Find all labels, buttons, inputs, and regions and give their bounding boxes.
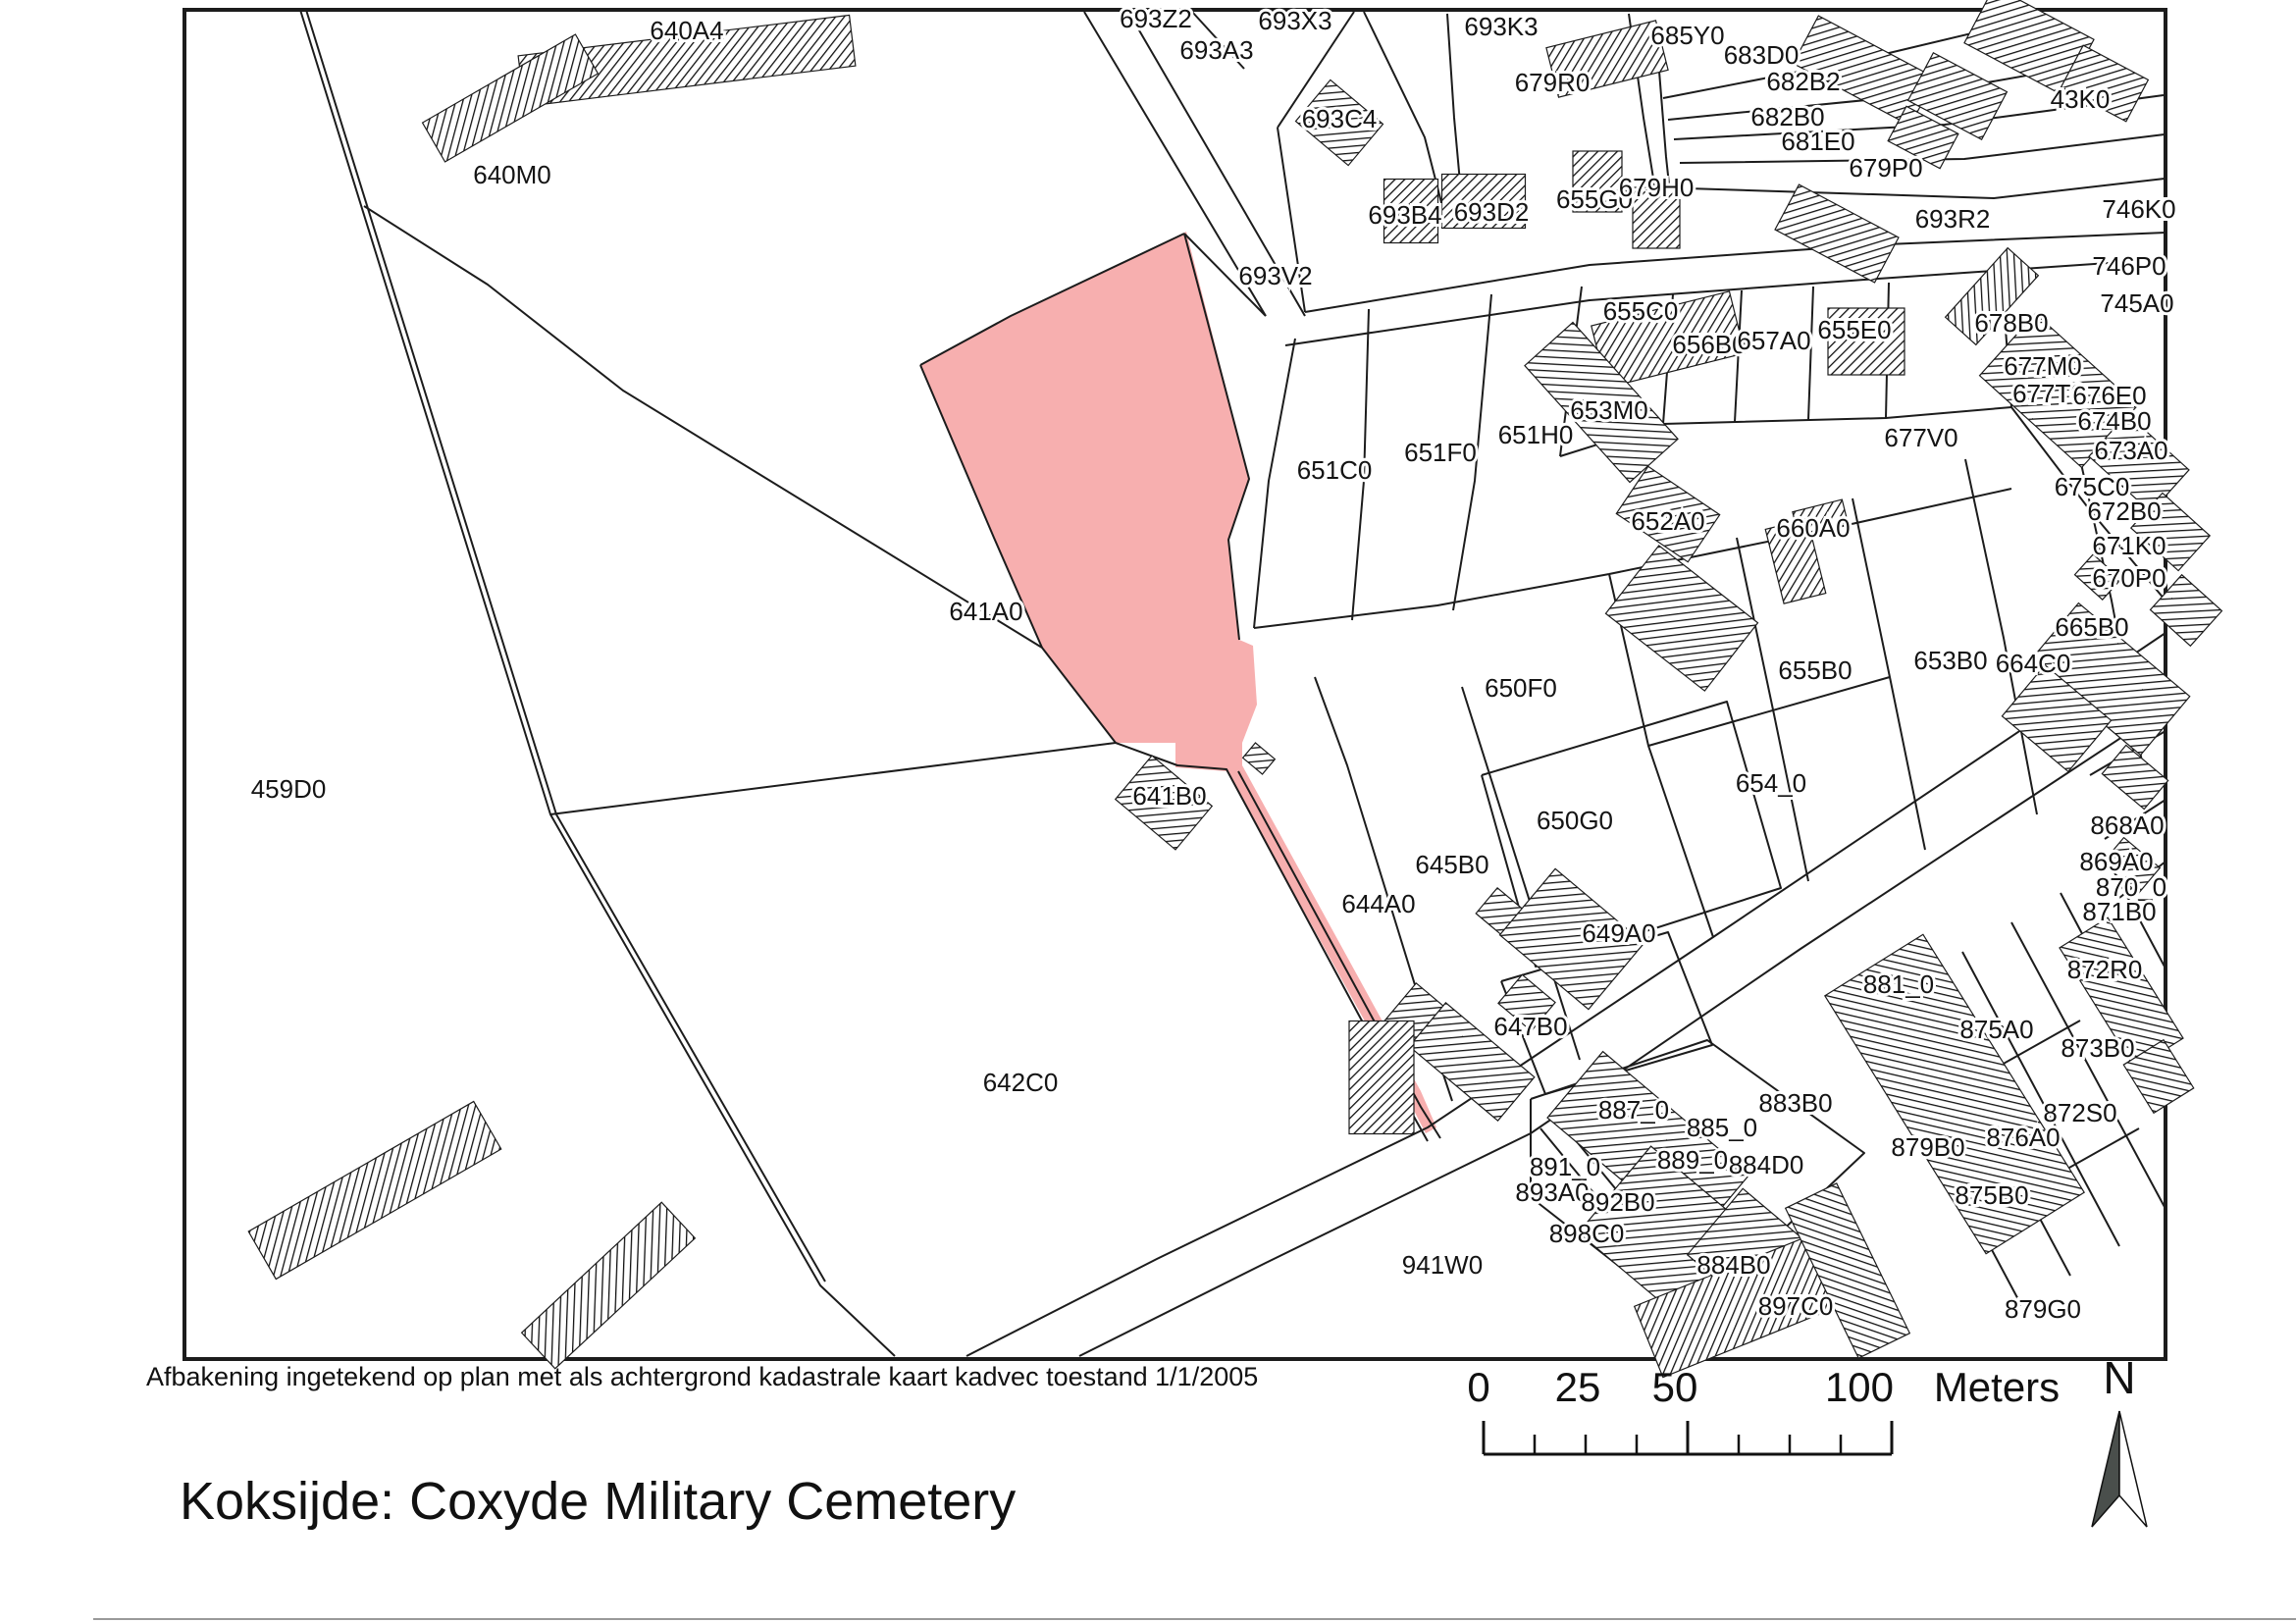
north-label: N xyxy=(2103,1352,2135,1403)
north-arrow-left xyxy=(2092,1411,2119,1527)
parcel-label: 746P0 xyxy=(2092,251,2166,281)
parcel-label: 673A0 xyxy=(2094,436,2167,465)
parcel-label: 693D2 xyxy=(1454,197,1530,227)
parcel-label: 693B4 xyxy=(1368,200,1441,230)
scale-label: 100 xyxy=(1825,1364,1894,1410)
parcel-label: 660A0 xyxy=(1776,513,1850,543)
parcel-label: 879G0 xyxy=(2005,1294,2081,1324)
scale-label: 25 xyxy=(1555,1364,1601,1410)
parcel-label: 875A0 xyxy=(1959,1015,2033,1044)
north-arrow-right xyxy=(2119,1411,2147,1527)
scanned-map-sheet: 640M0640A4459D0641A0642C0941W0693Z2693A3… xyxy=(0,0,2296,1623)
parcel-label: 887_0 xyxy=(1598,1095,1669,1125)
parcel-label: 651H0 xyxy=(1498,420,1574,449)
page-title: Koksijde: Coxyde Military Cemetery xyxy=(180,1472,1016,1531)
parcel-label: 677V0 xyxy=(1884,423,1957,452)
parcel-label: 641B0 xyxy=(1132,781,1206,811)
parcel-label: 685Y0 xyxy=(1650,21,1724,50)
parcel-label: 671K0 xyxy=(2092,531,2166,560)
scale-label: Meters xyxy=(1934,1364,2060,1410)
parcel-label: 647B0 xyxy=(1493,1012,1567,1041)
parcel-label: 898C0 xyxy=(1549,1219,1625,1248)
parcel-label: 656B0 xyxy=(1672,330,1746,359)
parcel-label: 665B0 xyxy=(2055,612,2128,642)
parcel-label: 873B0 xyxy=(2061,1033,2134,1063)
parcel-label: 883B0 xyxy=(1758,1088,1832,1118)
parcel-label: 693Z2 xyxy=(1120,4,1192,33)
parcel-label: 693V2 xyxy=(1238,261,1312,290)
parcel-label: 679H0 xyxy=(1619,173,1695,202)
parcel-label: 670P0 xyxy=(2092,563,2166,593)
parcel-label: 893A0 xyxy=(1515,1178,1589,1207)
parcel-label: 655C0 xyxy=(1603,296,1679,326)
parcel-label: 693C4 xyxy=(1302,104,1378,133)
parcel-label: 652A0 xyxy=(1631,506,1704,536)
parcel-label: 650F0 xyxy=(1485,673,1557,703)
parcel-label: 679P0 xyxy=(1849,153,1922,183)
scale-bar: 02550100Meters xyxy=(1467,1364,2060,1454)
parcel-label: 655B0 xyxy=(1778,655,1852,685)
parcel-label: 941W0 xyxy=(1402,1250,1483,1280)
parcel-label: 693R2 xyxy=(1915,204,1991,234)
parcel-label: 640A4 xyxy=(650,16,723,45)
parcel-label: 682B2 xyxy=(1766,67,1840,96)
parcel-label: 693X3 xyxy=(1258,6,1331,35)
parcel-label: 651F0 xyxy=(1404,438,1477,467)
parcel-label: 672B0 xyxy=(2087,497,2161,526)
parcel-label: 746K0 xyxy=(2102,194,2175,224)
scale-label: 0 xyxy=(1467,1364,1489,1410)
parcel-label: 693A3 xyxy=(1179,35,1253,65)
parcel-label: 892B0 xyxy=(1581,1187,1654,1217)
parcel-label: 657A0 xyxy=(1737,326,1810,355)
parcel-label: 43K0 xyxy=(2051,84,2111,114)
parcel-label: 897C0 xyxy=(1758,1291,1834,1321)
parcel-label: 640M0 xyxy=(473,160,551,189)
parcel-label: 650G0 xyxy=(1537,806,1613,835)
scale-label: 50 xyxy=(1652,1364,1698,1410)
parcel-label: 642C0 xyxy=(983,1068,1059,1097)
parcel-label: 678B0 xyxy=(1974,308,2048,338)
parcel-label: 677M0 xyxy=(2004,351,2082,381)
parcel-label: 879B0 xyxy=(1891,1132,1964,1162)
building-hatched xyxy=(1349,1021,1414,1134)
parcel-label: 674B0 xyxy=(2077,406,2151,436)
parcel-label: 645B0 xyxy=(1415,850,1488,879)
parcel-label: 653M0 xyxy=(1570,395,1648,425)
parcel-label: 884B0 xyxy=(1696,1250,1770,1280)
parcel-label: 884D0 xyxy=(1729,1150,1804,1179)
parcel-label: 679R0 xyxy=(1515,68,1591,97)
parcel-label: 683D0 xyxy=(1724,40,1800,70)
parcel-label: 871B0 xyxy=(2082,897,2156,926)
parcel-label: 459D0 xyxy=(251,774,327,804)
map-canvas: 640M0640A4459D0641A0642C0941W0693Z2693A3… xyxy=(0,0,2296,1623)
parcel-label: 649A0 xyxy=(1582,918,1655,948)
parcel-label: 885_0 xyxy=(1687,1113,1757,1142)
parcel-label: 655E0 xyxy=(1817,315,1891,344)
parcel-label: 881_0 xyxy=(1863,969,1934,999)
parcel-label: 654_0 xyxy=(1736,768,1806,798)
parcel-label: 681E0 xyxy=(1781,127,1854,156)
parcel-label: 651C0 xyxy=(1297,455,1373,485)
parcel-label: 641A0 xyxy=(949,597,1022,626)
parcel-label: 693K3 xyxy=(1464,12,1538,41)
parcel-label: 868A0 xyxy=(2090,811,2164,840)
parcel-label: 889_0 xyxy=(1657,1145,1728,1175)
parcel-label: 664C0 xyxy=(1996,649,2071,678)
parcel-label: 876A0 xyxy=(1986,1123,2060,1152)
parcel-label: 653B0 xyxy=(1913,646,1987,675)
parcel-label: 745A0 xyxy=(2100,288,2173,318)
parcel-label: 875B0 xyxy=(1955,1180,2028,1210)
map-caption: Afbakening ingetekend op plan met als ac… xyxy=(146,1362,1258,1391)
north-arrow: N xyxy=(2092,1352,2147,1527)
parcel-label: 872R0 xyxy=(2067,955,2143,984)
parcel-label: 644A0 xyxy=(1341,889,1415,918)
